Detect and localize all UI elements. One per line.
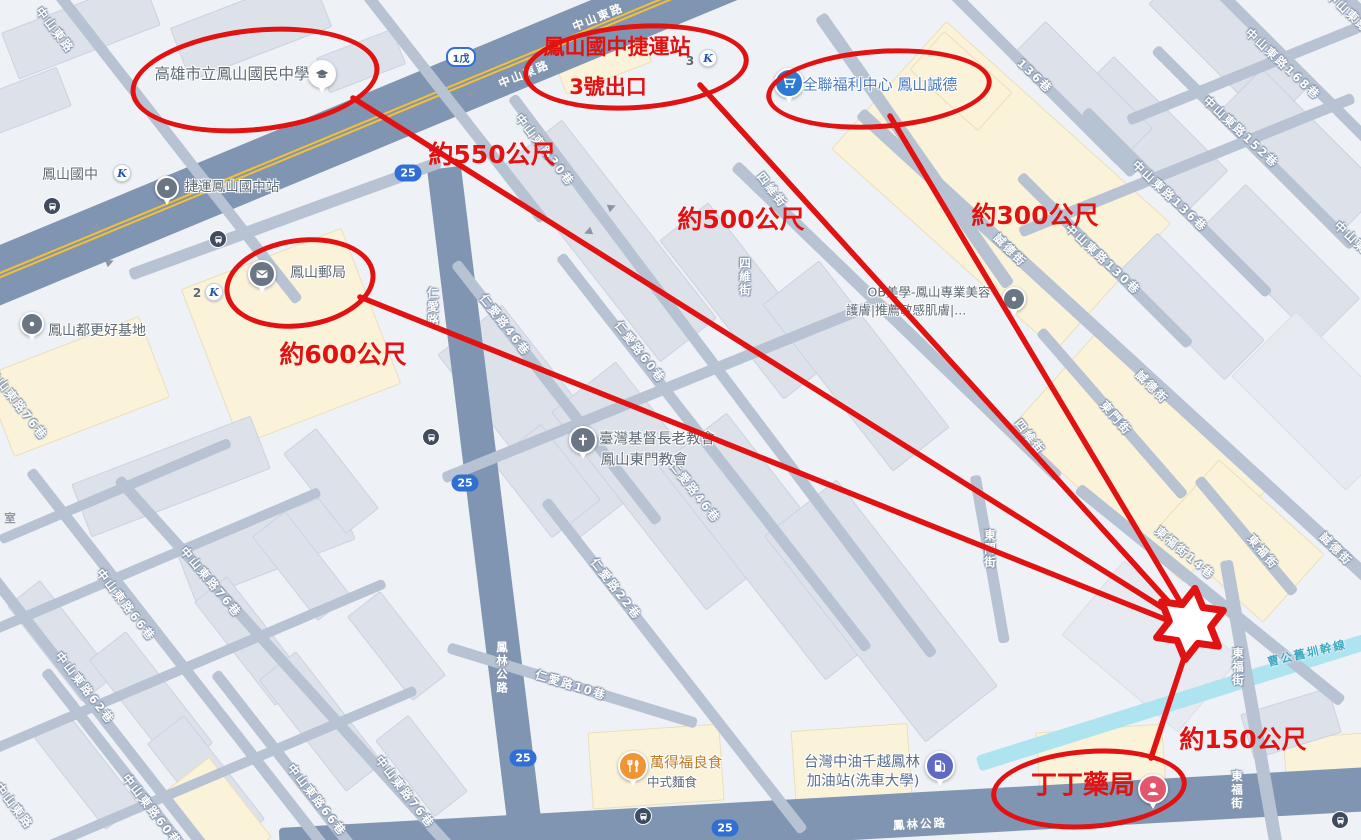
pharmacy-name: 丁丁藥局 [1031,765,1135,802]
route-shield-25: 25 [510,750,537,767]
gas-station-pin[interactable] [925,751,955,781]
street-label: 中山東路 [1331,218,1361,267]
gas-label-line2[interactable]: 加油站(洗車大學) [807,770,920,791]
street-label: 室 [4,510,16,526]
urban-renewal-pin[interactable] [20,312,44,336]
route-shield-1戊: 1戊 [446,47,476,67]
ob-beauty-label-line2[interactable]: 護膚|推薦敏感肌膚|... [846,300,966,319]
street-label: 中山東路 [0,780,37,832]
dot-icon [1008,293,1020,305]
street-label: 四維街 [737,257,753,298]
restaurant-pin[interactable] [618,751,648,781]
cross-icon [575,432,591,448]
distance-pharmacy: 約150公尺 [1179,720,1306,756]
distance-mrt: 約500公尺 [677,200,804,236]
krt-logo-icon: K [205,283,223,301]
bus-glyph [426,432,437,443]
gas-label-line1[interactable]: 台灣中油千越鳳林 [804,751,920,772]
street-label: 仁愛路 [425,287,441,328]
bus-stop-icon [1331,811,1349,829]
route-shield-25: 25 [395,165,422,182]
map-canvas[interactable]: 中山東路中山東路中山東路中山東路30巷中山東路76巷中山東路66巷中山東路76巷… [0,0,1361,840]
station-name-label[interactable]: 鳳山國中 [42,164,98,184]
restaurant-icon [624,757,642,775]
mrt-callout-line2: 3號出口 [569,71,647,101]
bus-glyph [638,811,649,822]
street-label: 東門街 [982,529,998,570]
church-label-line2[interactable]: 鳳山東門教會 [601,449,688,470]
building [1,0,161,80]
mrt-callout-line1: 鳳山國中捷運站 [544,31,691,61]
street-label: 仁愛路10巷 [533,667,608,704]
distance-school: 約550公尺 [428,135,555,171]
church-pin[interactable] [569,426,597,454]
bus-glyph [213,234,224,245]
ob-beauty-label-line1[interactable]: OB美學-鳳山專業美容 [868,282,991,301]
street-label: 東福街 [1229,770,1245,811]
bus-stop-icon [634,807,652,825]
bus-stop-icon [209,230,227,248]
street-label: 東福街 [1230,647,1246,688]
bus-glyph [1335,815,1346,826]
building [347,591,446,701]
church-label-line1[interactable]: 臺灣基督長老教會 [599,428,715,449]
krt-logo-icon: K [113,164,131,182]
restaurant-sub-label[interactable]: 中式麵食 [647,772,697,791]
street-label: 仁愛路22巷 [587,555,645,623]
route-shield-25: 25 [712,820,739,837]
mrt-exit-number: 2 [193,286,201,300]
urban-renewal-label[interactable]: 鳳山都更好基地 [48,320,146,340]
distance-post: 約600公尺 [279,335,406,371]
dot-icon [26,318,38,330]
bus-stop-icon [43,197,61,215]
street-label: 鳳林公路 [494,641,510,695]
route-shield-25: 25 [452,475,479,492]
bus-stop-icon [422,428,440,446]
mrt-station-label[interactable]: 捷運鳳山國中站 [185,175,280,195]
dot-icon [161,182,173,194]
mrt-station-pin[interactable] [155,176,179,200]
street-label: 鳳林公路 [893,815,948,834]
ob-beauty-pin[interactable] [1002,287,1026,311]
gas-icon [931,757,949,775]
distance-pxmart: 約300公尺 [971,196,1098,232]
bus-glyph [47,201,58,212]
building [0,67,72,136]
building [259,651,383,792]
restaurant-label[interactable]: 萬得福良食 [650,752,723,773]
street-label: 誠德街 [1316,529,1356,569]
